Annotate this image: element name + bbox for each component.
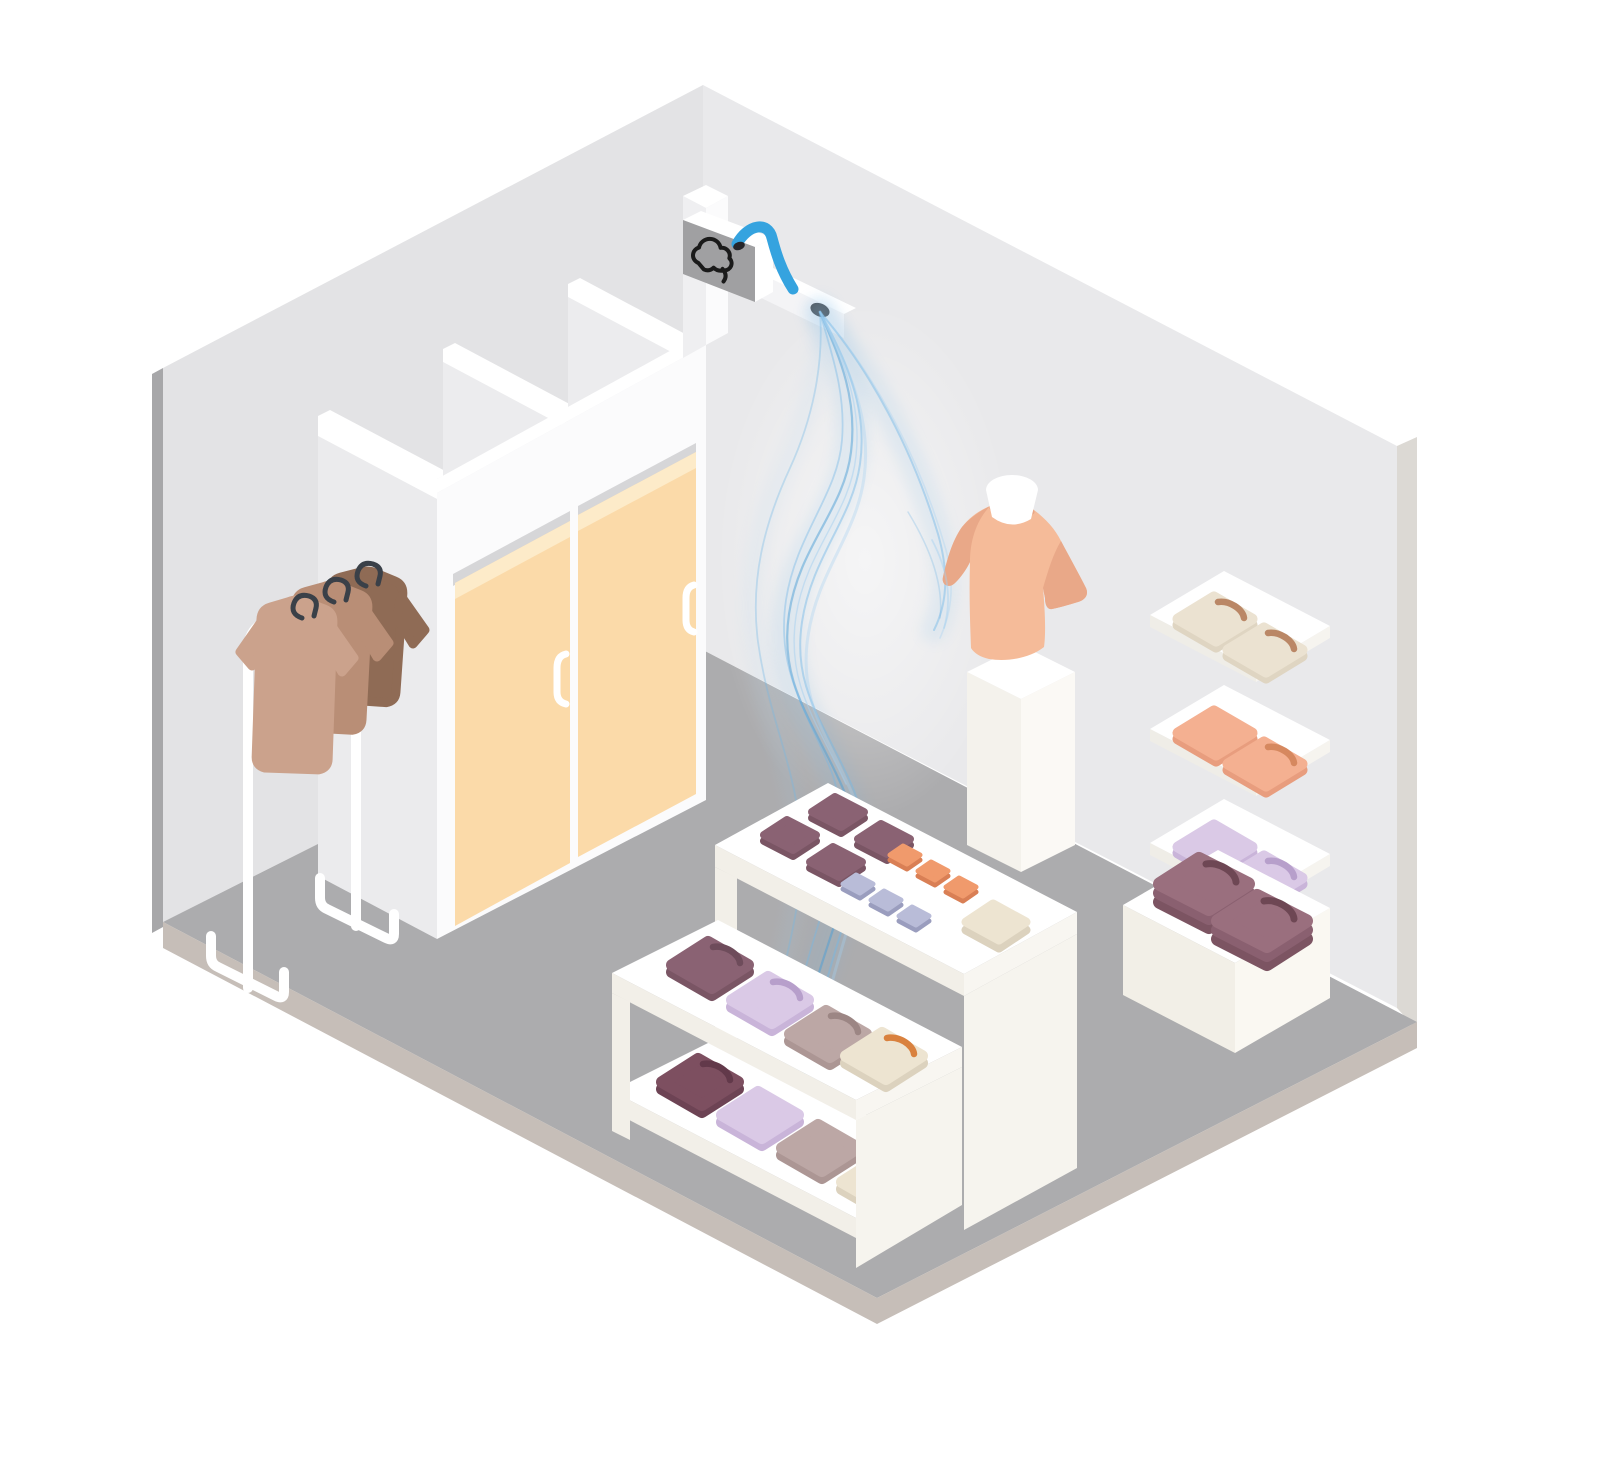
right-wall-edge: [1397, 437, 1417, 1030]
mannequin-neck: [986, 475, 1038, 525]
pedestal-right: [1021, 672, 1075, 872]
left-wall-edge: [152, 368, 163, 933]
fitting-room-door-2: [578, 443, 696, 857]
wall-shelves: [1150, 571, 1330, 910]
fitting-room-door-1: [453, 511, 570, 926]
illustration-canvas: [0, 0, 1600, 1483]
pedestal-left: [967, 672, 1021, 872]
store-scene: [0, 0, 1600, 1483]
low-table-leg: [612, 993, 630, 1140]
